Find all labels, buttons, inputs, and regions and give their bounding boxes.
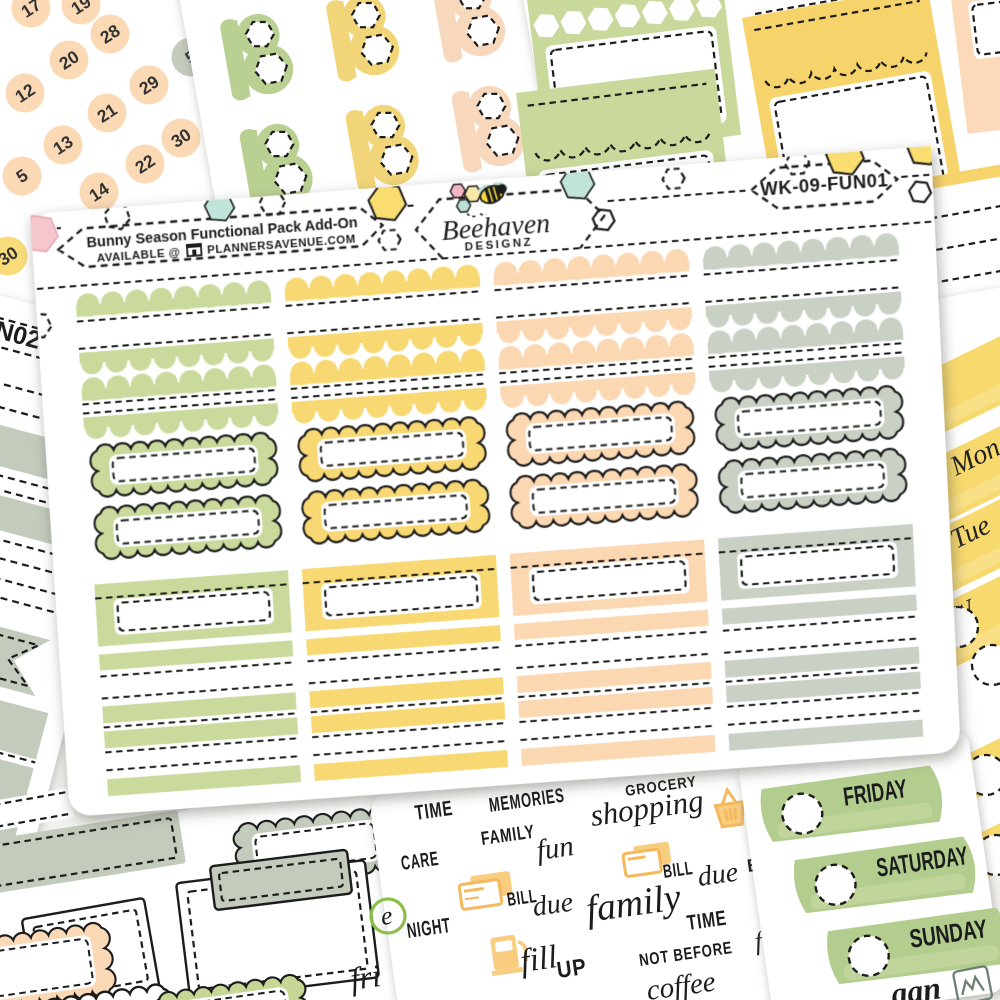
svg-text:due: due [531, 887, 575, 923]
svg-text:UP: UP [555, 953, 588, 983]
svg-text:due: due [696, 857, 740, 893]
svg-text:fri: fri [348, 957, 383, 997]
svg-text:fun: fun [535, 830, 576, 867]
svg-text:fill: fill [518, 939, 559, 980]
